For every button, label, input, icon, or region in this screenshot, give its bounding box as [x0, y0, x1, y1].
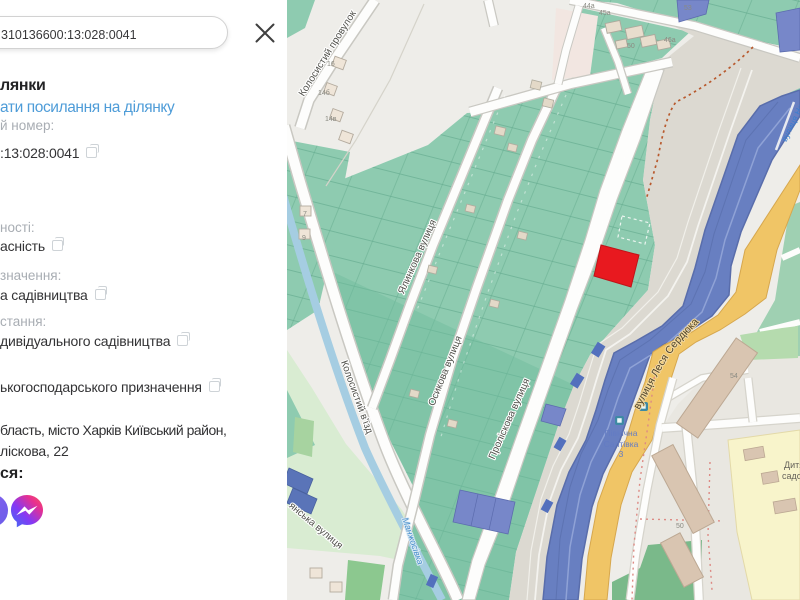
svg-text:53: 53 [684, 5, 692, 12]
svg-text:50: 50 [627, 43, 635, 50]
svg-text:16: 16 [327, 61, 335, 68]
svg-text:3: 3 [619, 449, 624, 459]
svg-text:14в: 14в [325, 116, 337, 123]
svg-text:Дитячий: Дитячий [784, 460, 800, 470]
svg-text:50: 50 [676, 523, 684, 530]
svg-text:45а: 45а [599, 10, 611, 17]
svg-text:44а: 44а [583, 3, 595, 10]
svg-text:54: 54 [730, 373, 738, 380]
svg-text:14б: 14б [318, 89, 330, 97]
svg-text:7: 7 [303, 211, 307, 218]
svg-text:Північна: Північна [605, 428, 638, 438]
svg-text:46а: 46а [664, 37, 676, 44]
svg-text:Салтівка: Салтівка [604, 439, 639, 449]
svg-text:садочок: садочок [782, 471, 800, 481]
svg-text:9: 9 [302, 235, 306, 242]
